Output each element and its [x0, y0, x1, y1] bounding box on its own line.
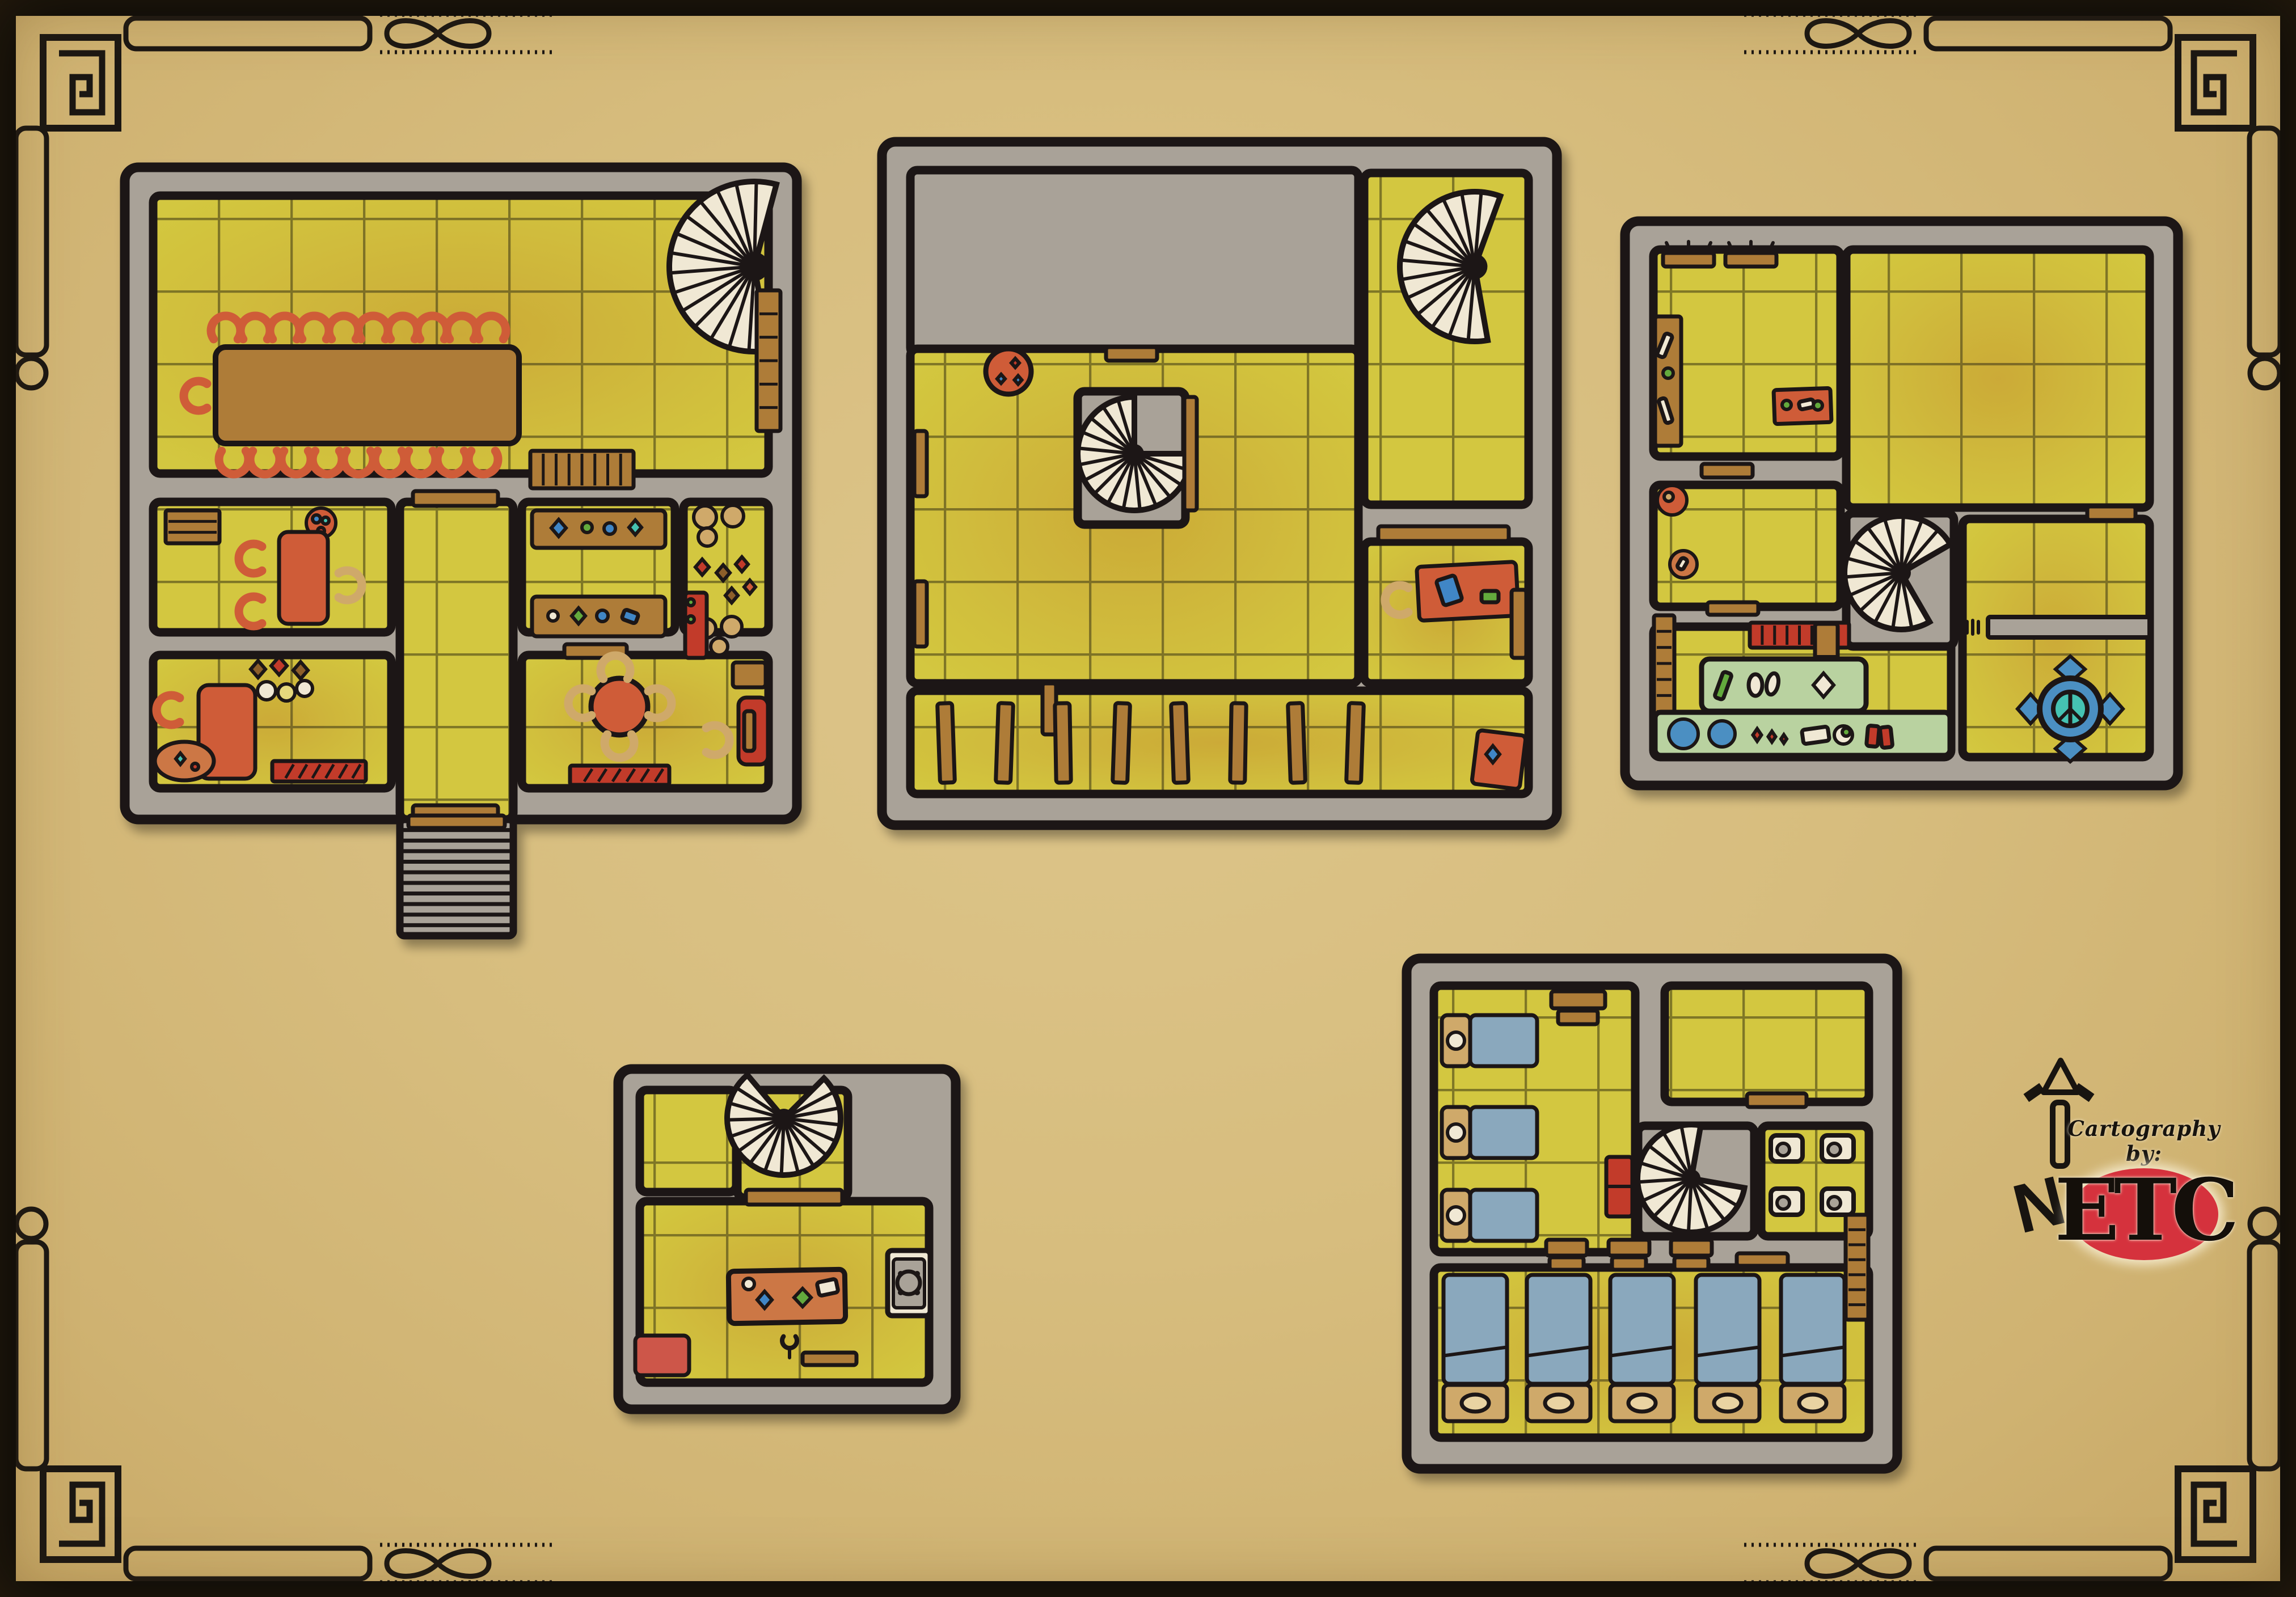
banquet-table [216, 347, 519, 443]
frame-bar [126, 1548, 370, 1579]
circle [898, 1271, 904, 1277]
circle [1842, 728, 1850, 736]
stall [1171, 703, 1189, 783]
gem [176, 753, 185, 764]
bed-blanket [1610, 1275, 1674, 1384]
frame-ring [2250, 358, 2280, 388]
door-threshold [1707, 602, 1758, 615]
bread [721, 616, 742, 637]
circle [548, 611, 558, 621]
frame-bar [1926, 18, 2170, 49]
circle [687, 599, 694, 606]
frame-ring [16, 1209, 46, 1239]
circle [914, 1271, 920, 1277]
frame-corner [16, 1209, 555, 1582]
circle [1828, 1197, 1841, 1209]
rect [1866, 725, 1879, 747]
circle [743, 1278, 754, 1290]
round-table [591, 678, 648, 735]
circle [898, 1290, 904, 1295]
stair-hub [774, 1109, 794, 1128]
wash-basin [1709, 721, 1735, 747]
door-threshold [1702, 464, 1753, 478]
infinity-knot-icon [387, 21, 489, 47]
terrace [910, 170, 1358, 354]
frame-bar [1926, 1548, 2170, 1579]
building-south-study [618, 1069, 956, 1409]
circle [687, 616, 694, 623]
wall-rack [1725, 253, 1776, 267]
frame-bar-vertical [2249, 128, 2280, 355]
building-center-market [882, 142, 1557, 825]
circle [297, 681, 313, 696]
gem [1011, 358, 1019, 367]
bread [711, 638, 728, 655]
circle [1813, 401, 1822, 410]
credit-prefix: Cartography by: [2056, 1116, 2232, 1166]
circle [313, 515, 320, 523]
frame-bar-vertical [16, 128, 47, 355]
wall-shelf [1512, 590, 1526, 658]
gem [1769, 732, 1776, 742]
woodpile [166, 510, 220, 543]
stair-hub [1892, 563, 1911, 582]
ellipse [1628, 1395, 1656, 1412]
stair-hub [1462, 254, 1488, 280]
credit-logo-text: ETC [2054, 1160, 2233, 1260]
corner-spiral-icon [59, 53, 102, 112]
door-threshold [408, 816, 505, 828]
rug [986, 349, 1031, 394]
circle [192, 763, 199, 770]
room-ne [1846, 250, 2150, 508]
rect [817, 1279, 838, 1296]
gem [1753, 729, 1762, 741]
corner-spiral-icon [59, 1485, 102, 1544]
circle [1447, 1124, 1464, 1141]
wall-stub [1988, 617, 2150, 637]
gem [997, 374, 1005, 383]
circle [1447, 1207, 1464, 1224]
building-east-kitchen [1625, 221, 2178, 785]
desk [1417, 561, 1519, 620]
stair-hub [1682, 1169, 1700, 1188]
room-ne [1665, 986, 1869, 1102]
building-west-tavern [125, 167, 797, 936]
frame-ring [2250, 1209, 2280, 1239]
rect [744, 711, 754, 751]
ellipse [1799, 1395, 1826, 1412]
rect [1801, 726, 1829, 744]
wash-basin [1669, 719, 1698, 749]
wall-bench [914, 431, 927, 496]
stall [1230, 703, 1246, 783]
door-threshold [413, 491, 498, 506]
bed-blanket [1470, 1015, 1537, 1066]
credit-badge: ETC [2070, 1168, 2218, 1260]
bench [1612, 1257, 1646, 1270]
stall [1288, 703, 1306, 783]
circle [1664, 492, 1673, 501]
stair-hub [1125, 444, 1144, 463]
circle [258, 682, 276, 700]
circle [1447, 1032, 1464, 1049]
wall-rack [1663, 253, 1714, 267]
circle [604, 523, 615, 534]
stall [1113, 703, 1130, 783]
ellipse [1545, 1395, 1572, 1412]
stall [938, 703, 955, 783]
bread [698, 528, 716, 546]
bench [1671, 1240, 1712, 1256]
bed-blanket [1696, 1275, 1759, 1384]
ellipse [1714, 1395, 1741, 1412]
door-threshold [803, 1353, 856, 1365]
bench [1674, 1257, 1708, 1270]
cabinet [733, 662, 766, 687]
circle [278, 684, 295, 701]
gem [1781, 735, 1787, 743]
circle [1782, 400, 1791, 409]
bench [1546, 1240, 1587, 1256]
corridor [400, 502, 513, 819]
frame-bar-vertical [2249, 1242, 2280, 1469]
building-south-inn [1407, 958, 1897, 1469]
door-threshold [1106, 347, 1157, 361]
infinity-knot-icon [1807, 21, 1909, 47]
corner-spiral-icon [2194, 1485, 2237, 1544]
stall [996, 703, 1014, 783]
circle [1663, 368, 1673, 378]
room-nw [640, 1090, 736, 1192]
rect [622, 609, 639, 624]
frame-ring [16, 358, 46, 388]
rect [1482, 591, 1499, 602]
corner-spiral-icon [2194, 53, 2237, 112]
rug [635, 1336, 689, 1375]
circle [582, 522, 592, 533]
cot [279, 532, 328, 624]
ellipse [1749, 674, 1762, 696]
bench [1550, 1257, 1584, 1270]
entry-steps [400, 819, 513, 936]
circle [1777, 1197, 1789, 1209]
bread [694, 506, 716, 529]
infinity-knot-icon [1807, 1551, 1909, 1577]
map-canvas: N Cartography by: ETC [0, 0, 2296, 1597]
door-threshold [2087, 506, 2135, 520]
ellipse [1462, 1395, 1489, 1412]
lintel [1747, 1093, 1807, 1107]
circle [1828, 1143, 1841, 1156]
stair-hub [740, 252, 769, 281]
circle [597, 610, 608, 622]
bed-blanket [1527, 1275, 1590, 1384]
wall-bench [914, 581, 927, 647]
frame-bar [126, 18, 370, 49]
bed-blanket [1444, 1275, 1507, 1384]
stall [1347, 703, 1364, 783]
bench [1551, 991, 1605, 1008]
door-threshold [746, 1190, 842, 1205]
desk [1472, 730, 1526, 789]
pillar [1184, 397, 1197, 510]
circle [914, 1290, 920, 1295]
door-threshold [1737, 1253, 1788, 1266]
circle [322, 517, 329, 524]
frame-bar-vertical [16, 1242, 47, 1469]
gem [1015, 376, 1022, 385]
bed-blanket [1781, 1275, 1845, 1384]
bench [1558, 1011, 1598, 1024]
lintel [1378, 526, 1509, 541]
bed-blanket [1470, 1107, 1537, 1158]
bench [1609, 1240, 1649, 1256]
circle [1777, 1143, 1789, 1156]
map-svg [0, 0, 2296, 1597]
rect [1880, 726, 1893, 748]
infinity-knot-icon [387, 1551, 489, 1577]
cartographer-credit: Cartography by: ETC [2056, 1116, 2232, 1247]
stall [1055, 703, 1071, 783]
bed-blanket [1470, 1190, 1537, 1241]
bread [722, 505, 744, 527]
